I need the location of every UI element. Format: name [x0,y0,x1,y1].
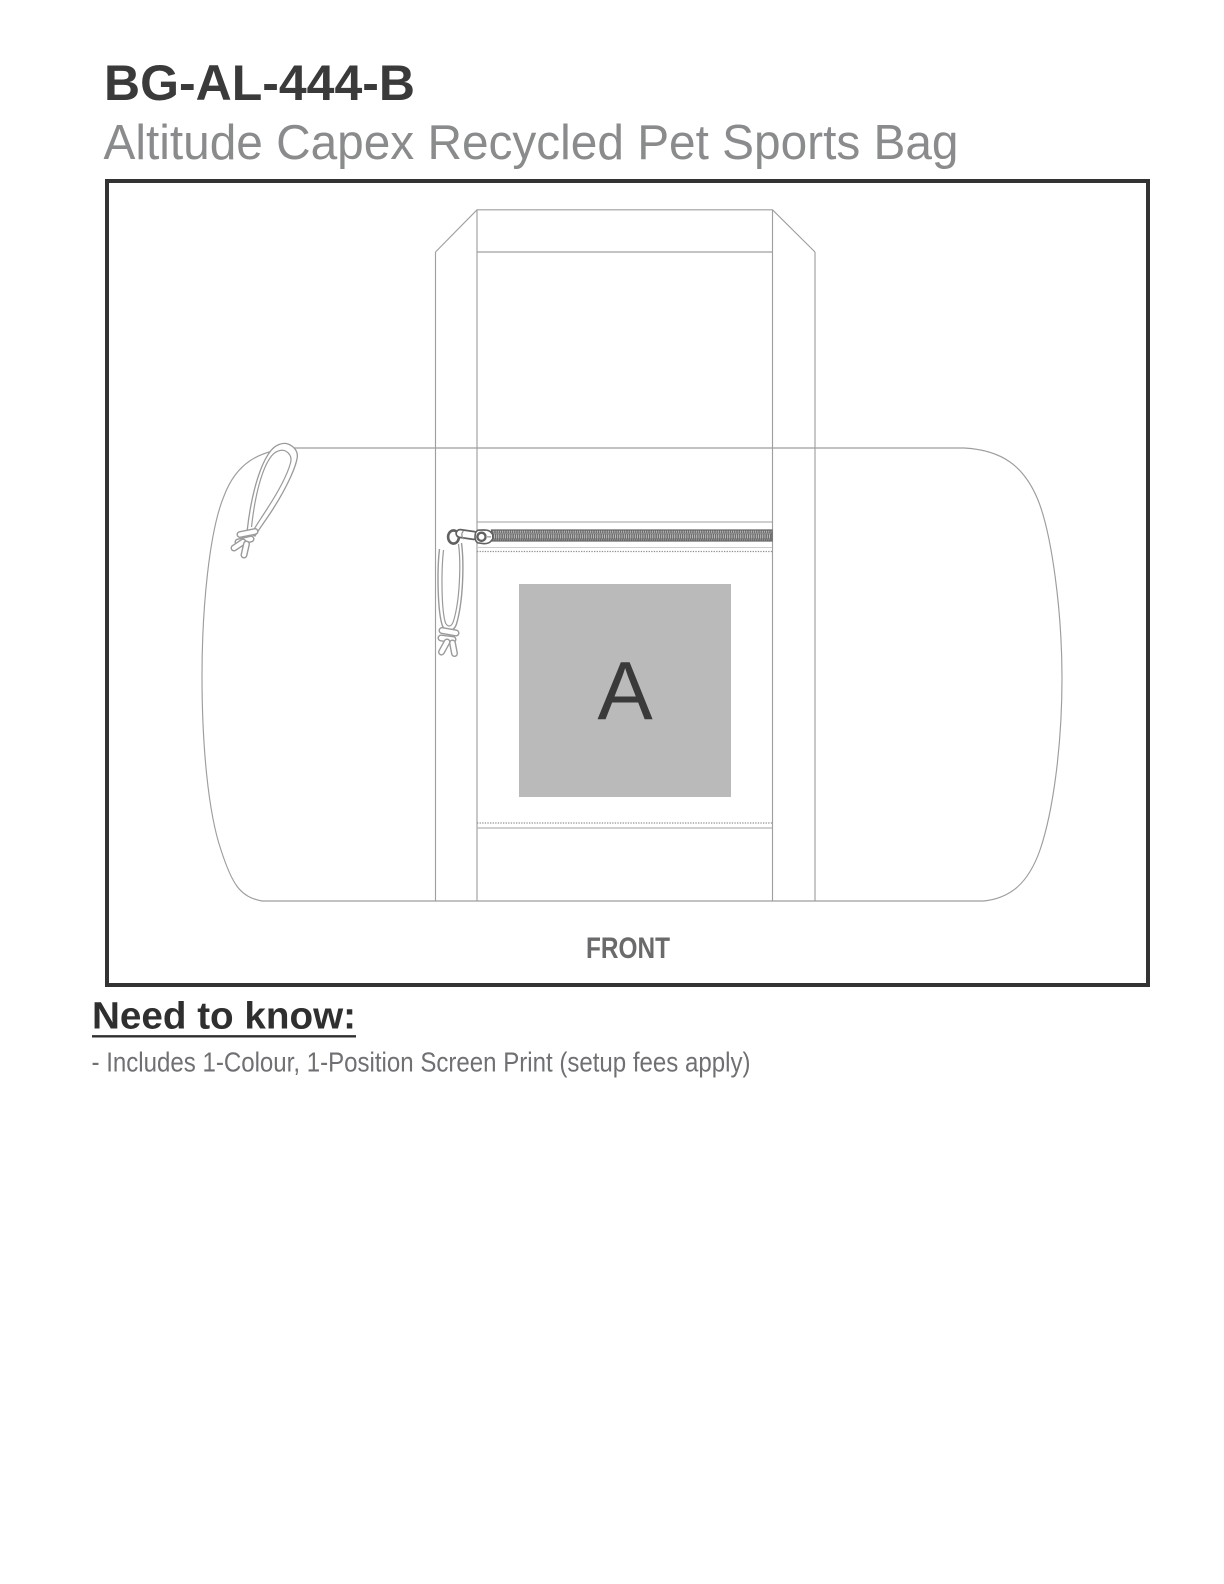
svg-text:- Includes 1-Colour, 1-Positio: - Includes 1-Colour, 1-Position Screen P… [92,1047,751,1078]
svg-text:FRONT: FRONT [586,932,670,965]
svg-text:A: A [597,644,653,737]
svg-text:BG-AL-444-B: BG-AL-444-B [104,55,415,111]
svg-text:Altitude Capex Recycled Pet Sp: Altitude Capex Recycled Pet Sports Bag [104,116,959,170]
svg-text:Need to know:: Need to know: [92,996,356,1038]
